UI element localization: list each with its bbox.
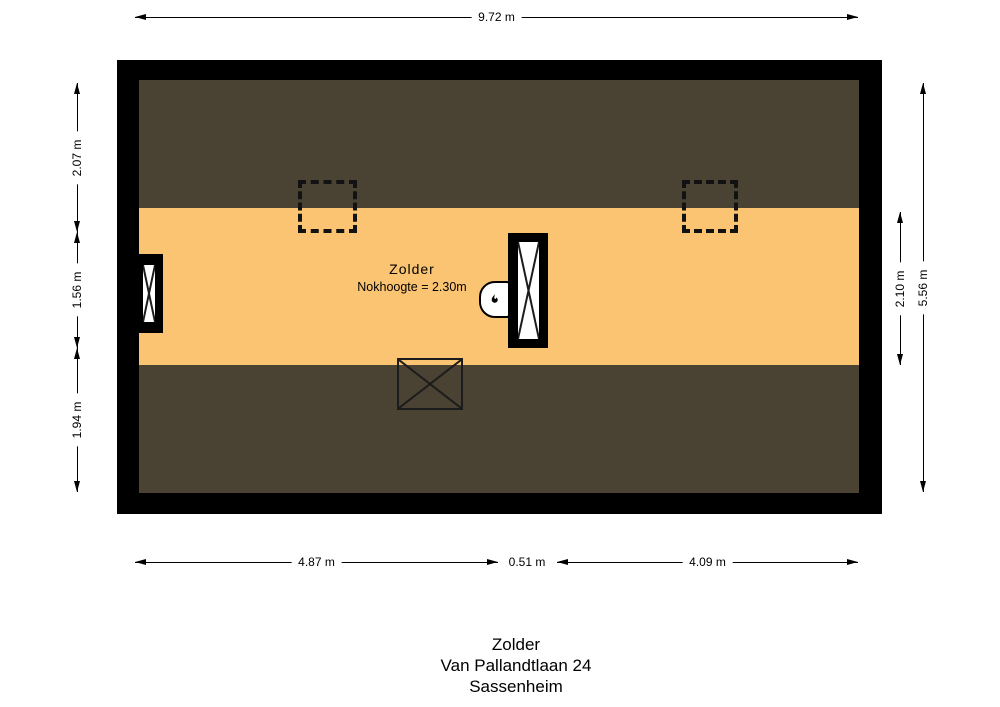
dimension-label: 4.09 m xyxy=(682,555,733,569)
room-label: Zolder xyxy=(389,261,435,277)
ridge-height-note: Nokhoogte = 2.30m xyxy=(357,280,466,294)
floorplan-canvas: Zolder Nokhoogte = 2.30m 9.72 m 2.07 m 1… xyxy=(0,0,1000,707)
dimension-bottom-right: 4.09 m xyxy=(557,556,858,568)
caption-address: Van Pallandtlaan 24 xyxy=(441,655,592,676)
dimension-left-middle: 1.56 m xyxy=(71,232,83,348)
dimension-left-bottom: 1.94 m xyxy=(71,348,83,492)
arrow-up-icon xyxy=(74,348,80,359)
dimension-right-outer: 5.56 m xyxy=(917,83,929,492)
left-window xyxy=(141,263,157,324)
stair-void-box xyxy=(397,358,463,410)
dimension-top: 9.72 m xyxy=(135,11,858,23)
caption-room: Zolder xyxy=(441,634,592,655)
center-window xyxy=(516,240,541,341)
caption-city: Sassenheim xyxy=(441,676,592,697)
dimension-right-inner: 2.10 m xyxy=(894,212,906,365)
dimension-label: 1.94 m xyxy=(70,394,84,447)
arrow-up-icon xyxy=(897,212,903,223)
caption: Zolder Van Pallandtlaan 24 Sassenheim xyxy=(441,634,592,697)
arrow-down-icon xyxy=(74,221,80,232)
arrow-up-icon xyxy=(74,83,80,94)
dashed-opening-right xyxy=(682,180,738,233)
window-cross-icon xyxy=(143,265,155,322)
dashed-opening-left xyxy=(298,180,357,233)
arrow-up-icon xyxy=(920,83,926,94)
arrow-down-icon xyxy=(920,481,926,492)
arrow-up-icon xyxy=(74,232,80,243)
dimension-label: 2.07 m xyxy=(70,131,84,184)
arrow-right-icon xyxy=(847,14,858,20)
arrow-down-icon xyxy=(74,481,80,492)
dimension-label: 9.72 m xyxy=(471,10,522,24)
arrow-left-icon xyxy=(135,559,146,565)
dimension-bottom-left: 4.87 m xyxy=(135,556,498,568)
dimension-label: 5.56 m xyxy=(916,261,930,314)
arrow-down-icon xyxy=(897,354,903,365)
flame-icon xyxy=(487,291,502,308)
arrow-left-icon xyxy=(557,559,568,565)
dimension-left-top: 2.07 m xyxy=(71,83,83,232)
dimension-bottom-middle-label: 0.51 m xyxy=(505,555,550,569)
cross-icon xyxy=(399,360,461,408)
boiler xyxy=(479,281,510,318)
arrow-down-icon xyxy=(74,337,80,348)
dimension-label: 1.56 m xyxy=(70,264,84,317)
window-cross-icon xyxy=(518,242,539,339)
dimension-label: 2.10 m xyxy=(893,262,907,315)
arrow-left-icon xyxy=(135,14,146,20)
arrow-right-icon xyxy=(847,559,858,565)
arrow-right-icon xyxy=(487,559,498,565)
dimension-label: 4.87 m xyxy=(291,555,342,569)
